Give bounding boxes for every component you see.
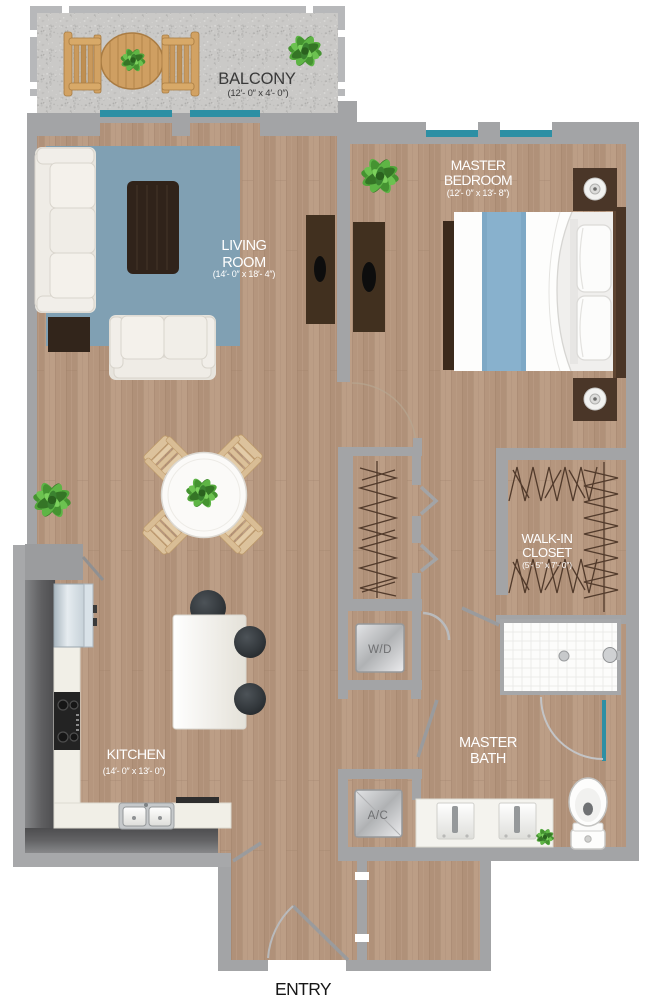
svg-text:(5′- 5″ x 7′- 0″): (5′- 5″ x 7′- 0″) xyxy=(522,560,572,570)
svg-text:MASTER: MASTER xyxy=(459,735,517,751)
svg-text:(14′- 0″ x 18′- 4″): (14′- 0″ x 18′- 4″) xyxy=(213,269,276,279)
svg-text:CLOSET: CLOSET xyxy=(522,545,572,560)
svg-text:BEDROOM: BEDROOM xyxy=(444,172,512,188)
svg-text:BATH: BATH xyxy=(470,751,506,767)
svg-text:BALCONY: BALCONY xyxy=(218,70,296,88)
svg-text:(12′- 0″ x 13′- 8″): (12′- 0″ x 13′- 8″) xyxy=(447,188,510,198)
svg-text:WALK-IN: WALK-IN xyxy=(522,531,573,546)
svg-text:LIVING: LIVING xyxy=(221,238,266,254)
svg-text:A/C: A/C xyxy=(368,810,389,822)
svg-text:KITCHEN: KITCHEN xyxy=(107,746,166,762)
svg-text:(12′- 0″ x 4′- 0″): (12′- 0″ x 4′- 0″) xyxy=(227,88,288,99)
svg-text:MASTER: MASTER xyxy=(451,157,506,173)
svg-text:(14′- 0″ x 13′- 0″): (14′- 0″ x 13′- 0″) xyxy=(103,766,166,776)
svg-text:ENTRY: ENTRY xyxy=(275,979,332,999)
svg-text:W/D: W/D xyxy=(368,644,392,656)
